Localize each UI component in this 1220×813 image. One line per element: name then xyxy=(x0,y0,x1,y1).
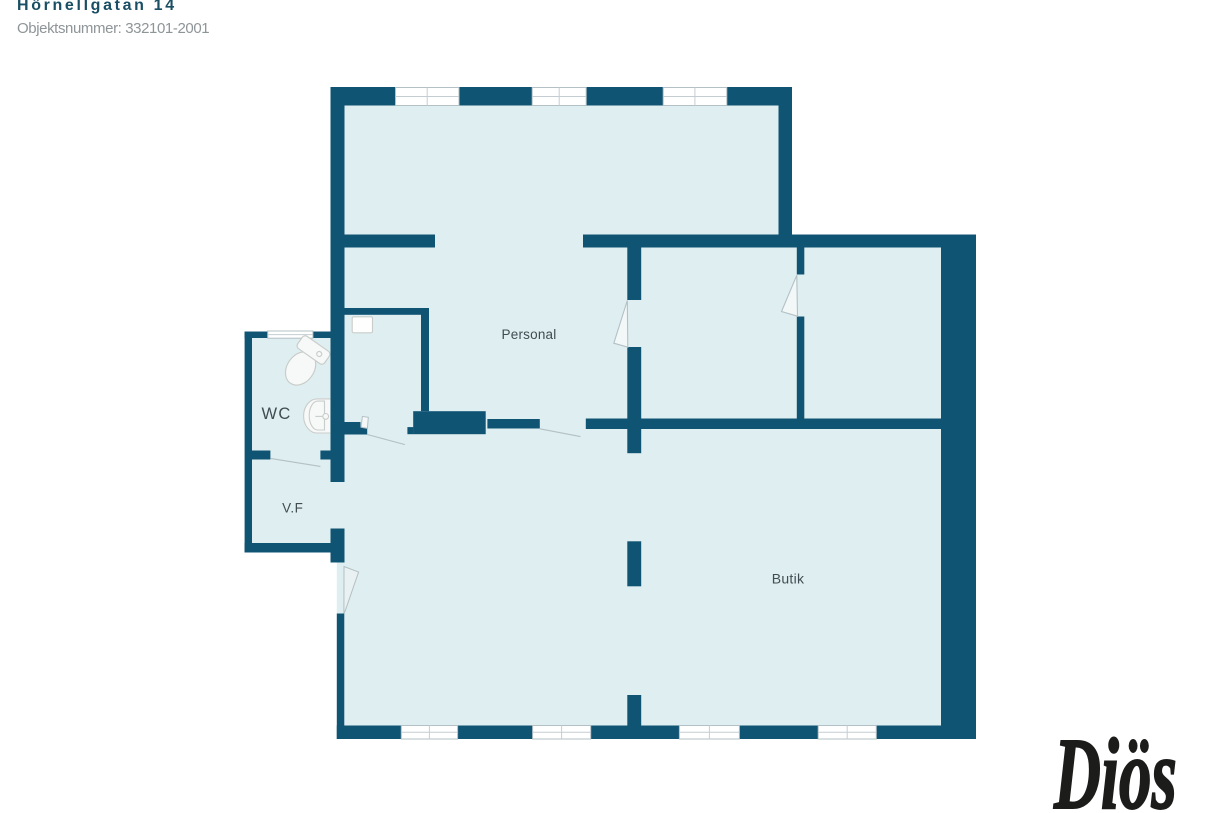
svg-text:Diös: Diös xyxy=(1053,718,1177,813)
svg-text:Butik: Butik xyxy=(772,571,805,587)
svg-text:WC: WC xyxy=(262,405,292,423)
svg-text:V.F: V.F xyxy=(282,501,303,516)
svg-text:Personal: Personal xyxy=(502,327,557,342)
